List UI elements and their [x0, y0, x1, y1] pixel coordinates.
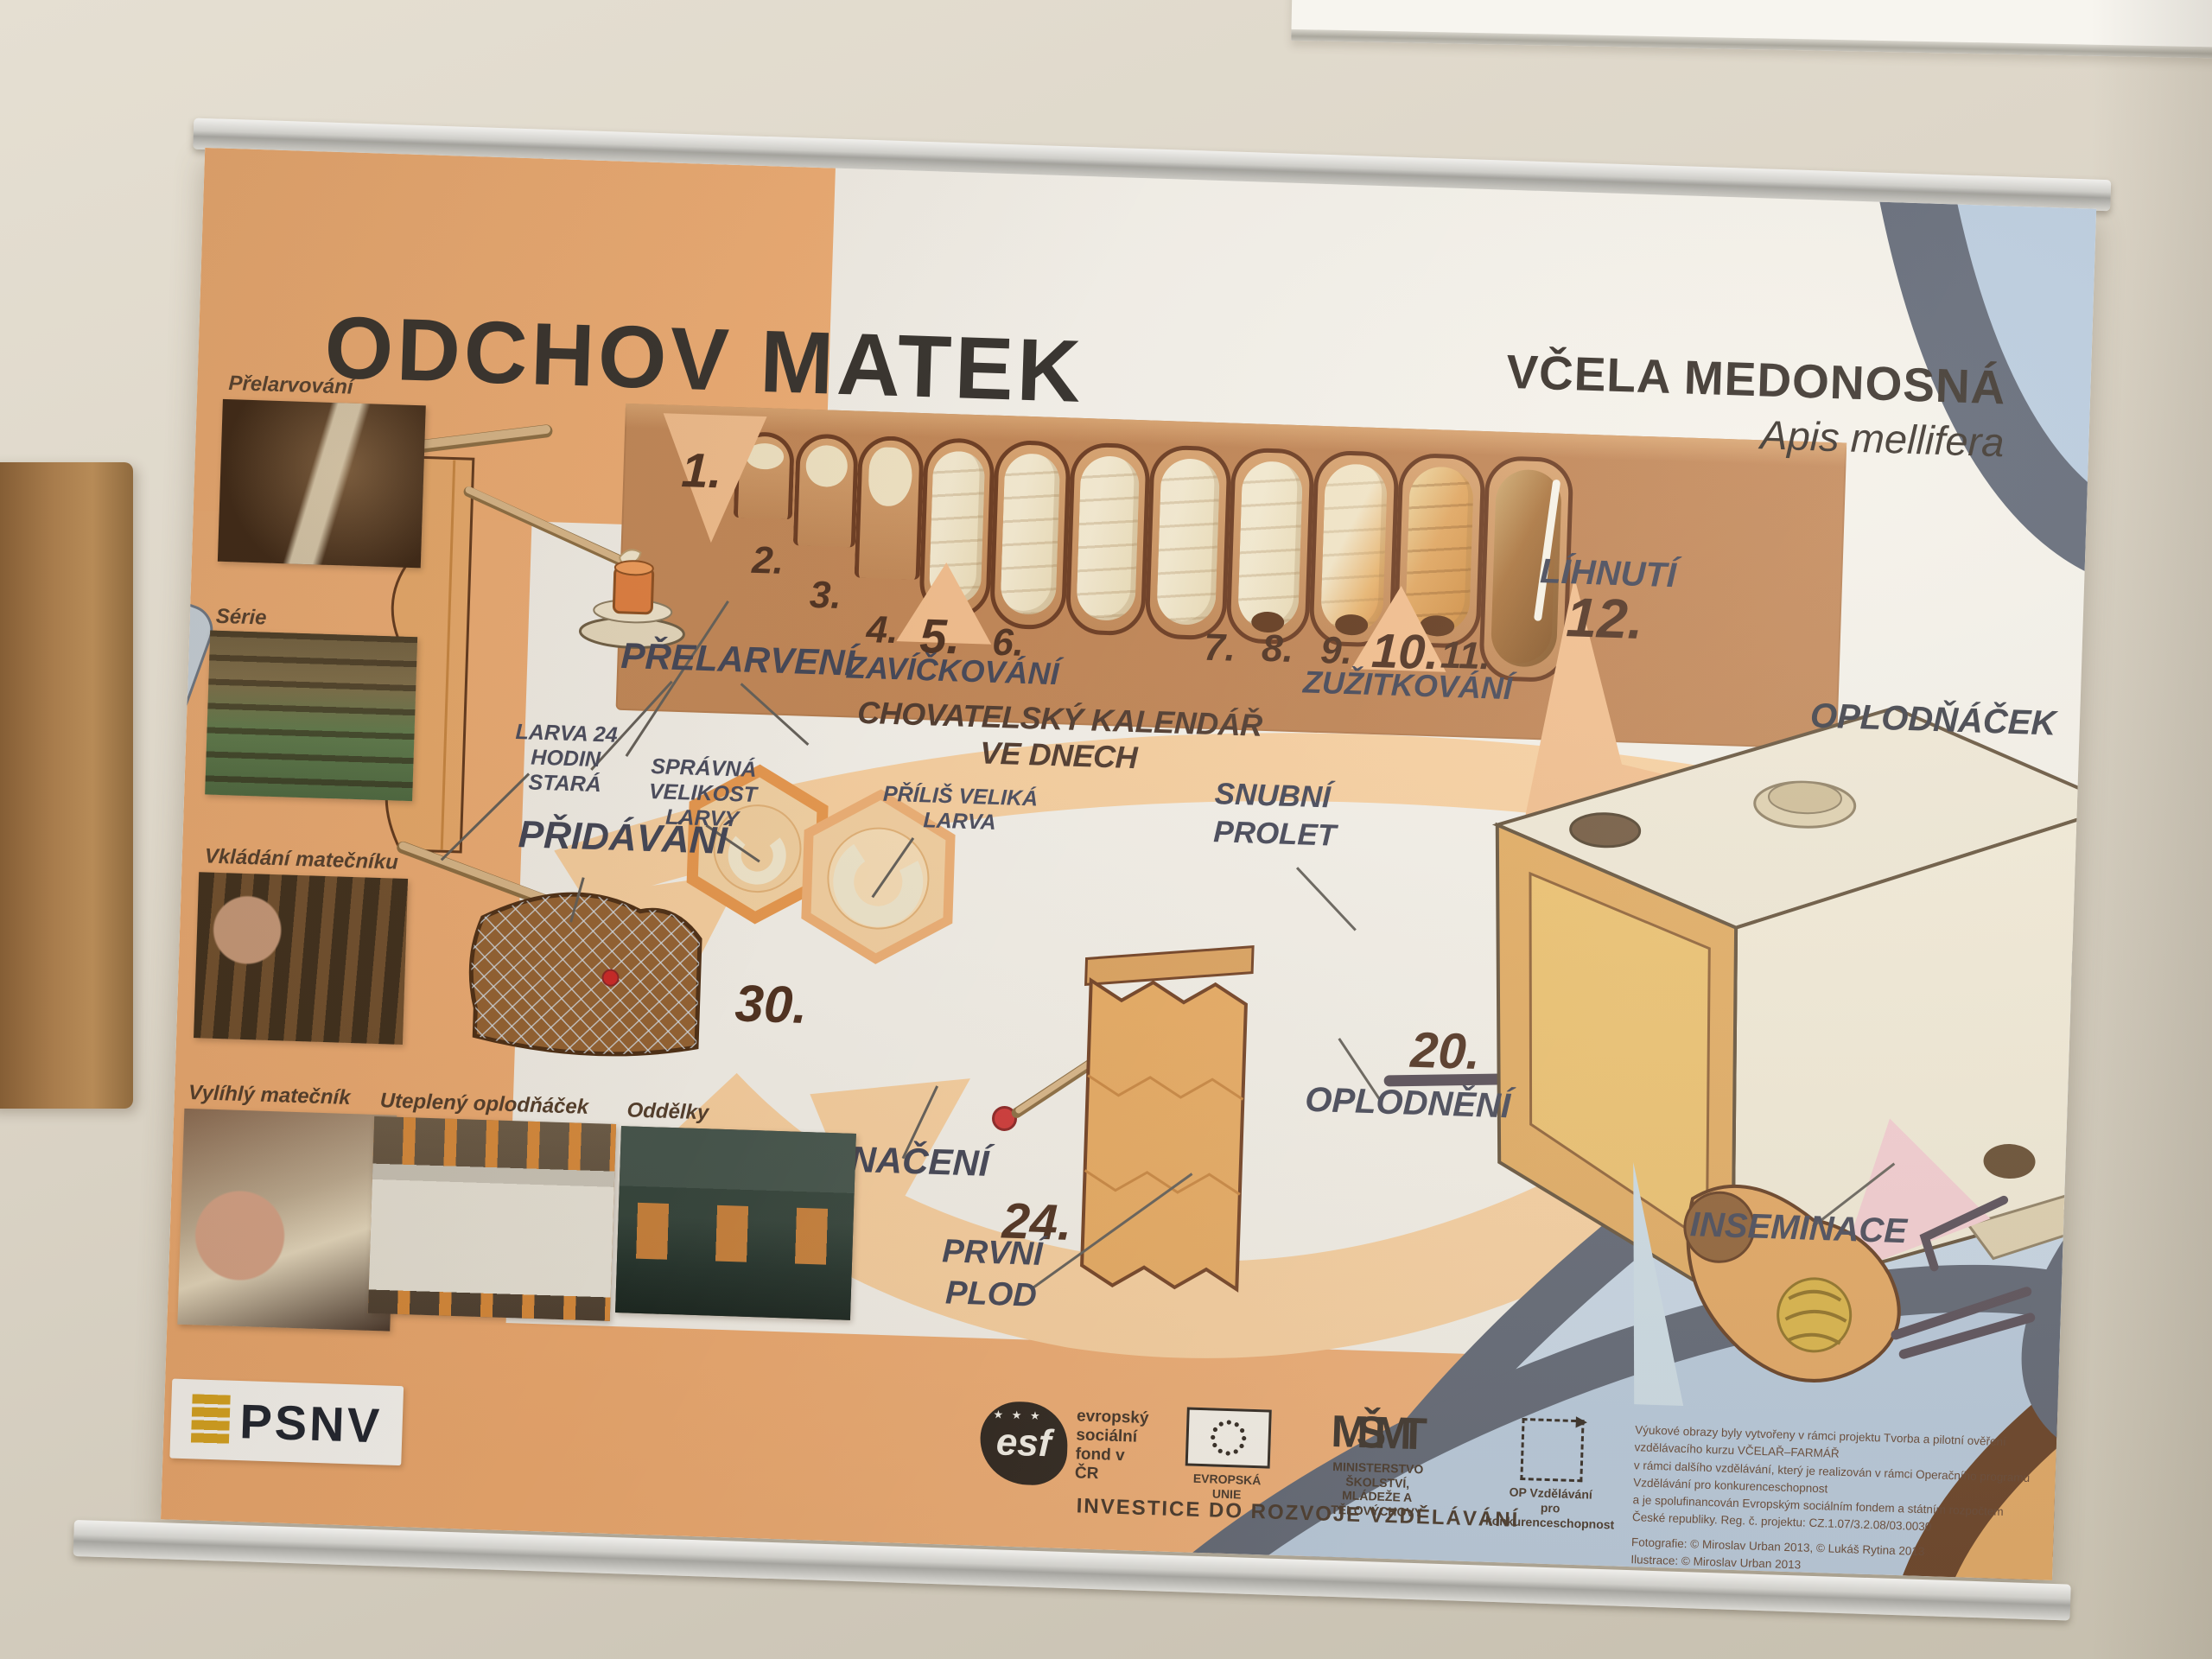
- op-logo-icon: [1520, 1418, 1584, 1482]
- psnv-logo-text: PSNV: [238, 1393, 383, 1453]
- eu-logo: EVROPSKÁ UNIE: [1182, 1407, 1274, 1503]
- esf-logo-caption: evropský sociální fond v ČR: [1075, 1408, 1153, 1485]
- poster: ODCHOV MATEK VČELA MEDONOSNÁ Apis mellif…: [159, 129, 2097, 1637]
- esf-logo-icon: ★ ★ ★ esf: [979, 1401, 1069, 1486]
- eu-flag-icon: [1185, 1407, 1272, 1468]
- wooden-cabinet: [0, 462, 133, 1109]
- esf-logo-text: esf: [995, 1421, 1052, 1465]
- credits-block: Výukové obrazy byly vytvořeny v rámci pr…: [1630, 1421, 2041, 1580]
- msmt-logo-mark: MŠMT: [1306, 1411, 1453, 1456]
- psnv-logo-icon: [191, 1394, 231, 1445]
- poster-paper: ODCHOV MATEK VČELA MEDONOSNÁ Apis mellif…: [161, 148, 2096, 1580]
- footer: PSNV ★ ★ ★ esf evropský sociální fond v …: [161, 148, 2096, 1580]
- wall-corner-shadow: [2091, 0, 2212, 1659]
- esf-logo: ★ ★ ★ esf evropský sociální fond v ČR: [979, 1401, 1152, 1489]
- upper-poster-edge: [1291, 0, 2212, 60]
- esf-stars: ★ ★ ★: [993, 1408, 1043, 1423]
- psnv-logo: PSNV: [169, 1379, 404, 1466]
- photo-of-wall-poster: ODCHOV MATEK VČELA MEDONOSNÁ Apis mellif…: [0, 0, 2212, 1659]
- upper-poster-rail: [1291, 29, 2212, 60]
